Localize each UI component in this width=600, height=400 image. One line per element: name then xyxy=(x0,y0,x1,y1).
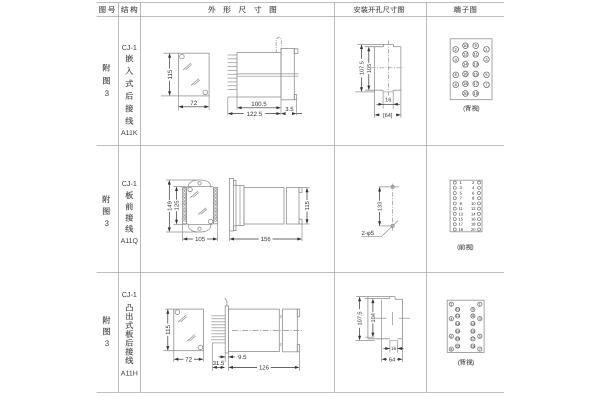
svg-text:16: 16 xyxy=(463,71,467,76)
svg-text:CJ-1: CJ-1 xyxy=(122,290,137,299)
svg-text:16: 16 xyxy=(391,346,397,351)
svg-text:15: 15 xyxy=(471,329,475,333)
svg-text:5: 5 xyxy=(485,72,487,77)
svg-text:4: 4 xyxy=(450,317,452,321)
svg-text:16: 16 xyxy=(456,329,460,333)
svg-text:): ) xyxy=(472,359,474,366)
svg-text:3.5: 3.5 xyxy=(285,106,294,113)
svg-text:17: 17 xyxy=(474,81,478,86)
svg-text:156: 156 xyxy=(261,236,272,243)
svg-text:3: 3 xyxy=(104,219,109,228)
svg-text:10: 10 xyxy=(456,308,460,312)
svg-text:122.5: 122.5 xyxy=(247,111,263,118)
svg-text:CJ-1: CJ-1 xyxy=(122,179,137,188)
svg-text:7: 7 xyxy=(485,82,487,87)
svg-text:A11K: A11K xyxy=(121,130,138,137)
svg-text:72: 72 xyxy=(190,100,197,107)
svg-text:3: 3 xyxy=(105,89,110,98)
svg-text:18: 18 xyxy=(456,337,460,341)
svg-text:[64]: [64] xyxy=(383,112,393,119)
svg-text:13: 13 xyxy=(471,322,475,326)
svg-text:2: 2 xyxy=(450,302,452,306)
svg-text:8: 8 xyxy=(455,82,457,87)
svg-text:19: 19 xyxy=(458,227,463,232)
svg-text:18: 18 xyxy=(463,81,467,86)
svg-text:9.5: 9.5 xyxy=(238,354,247,361)
svg-text:A11H: A11H xyxy=(121,371,138,378)
svg-text:12: 12 xyxy=(463,52,467,57)
svg-text:8: 8 xyxy=(450,347,452,351)
svg-text:133: 133 xyxy=(378,202,384,211)
svg-text:11: 11 xyxy=(474,52,478,57)
svg-text:13: 13 xyxy=(474,62,478,67)
svg-text:100.5: 100.5 xyxy=(251,101,267,108)
svg-text:5: 5 xyxy=(479,334,481,338)
svg-text:): ) xyxy=(478,105,480,112)
svg-text:17: 17 xyxy=(471,337,475,341)
svg-text:14: 14 xyxy=(456,322,460,326)
svg-text:1: 1 xyxy=(485,47,487,52)
svg-text:2-φ5: 2-φ5 xyxy=(362,230,375,237)
svg-text:107.5: 107.5 xyxy=(360,61,366,75)
svg-text:7: 7 xyxy=(479,347,481,351)
svg-text:64: 64 xyxy=(389,356,396,363)
svg-text:3: 3 xyxy=(485,57,487,62)
svg-text:11: 11 xyxy=(471,314,475,318)
svg-text:115: 115 xyxy=(305,201,311,210)
svg-text:9: 9 xyxy=(475,43,477,48)
svg-text:72: 72 xyxy=(185,356,192,363)
svg-text:104: 104 xyxy=(371,313,377,322)
svg-text:6: 6 xyxy=(455,72,457,77)
svg-text:105: 105 xyxy=(195,236,206,243)
svg-text:125: 125 xyxy=(174,201,181,211)
svg-text:19: 19 xyxy=(474,91,478,96)
svg-text:126: 126 xyxy=(259,365,270,372)
svg-text:): ) xyxy=(472,244,474,251)
svg-text:19: 19 xyxy=(471,344,475,348)
svg-text:3: 3 xyxy=(479,317,481,321)
svg-text:A11Q: A11Q xyxy=(121,238,139,245)
svg-text:2: 2 xyxy=(455,47,457,52)
svg-text:115: 115 xyxy=(165,324,172,334)
svg-text:6: 6 xyxy=(450,334,452,338)
svg-text:20: 20 xyxy=(471,227,476,232)
svg-text:CJ-1: CJ-1 xyxy=(122,43,137,52)
svg-text:15: 15 xyxy=(474,71,478,76)
svg-text:16: 16 xyxy=(385,98,391,104)
svg-text:107.5: 107.5 xyxy=(358,312,364,326)
svg-text:3: 3 xyxy=(105,339,110,348)
svg-text:12: 12 xyxy=(456,314,460,318)
svg-text:31.5: 31.5 xyxy=(213,360,225,367)
svg-text:9: 9 xyxy=(472,308,474,312)
svg-text:20: 20 xyxy=(456,344,460,348)
svg-text:115: 115 xyxy=(167,69,174,79)
svg-text:105: 105 xyxy=(367,64,373,73)
svg-text:1: 1 xyxy=(479,302,481,306)
svg-text:149: 149 xyxy=(166,201,173,211)
